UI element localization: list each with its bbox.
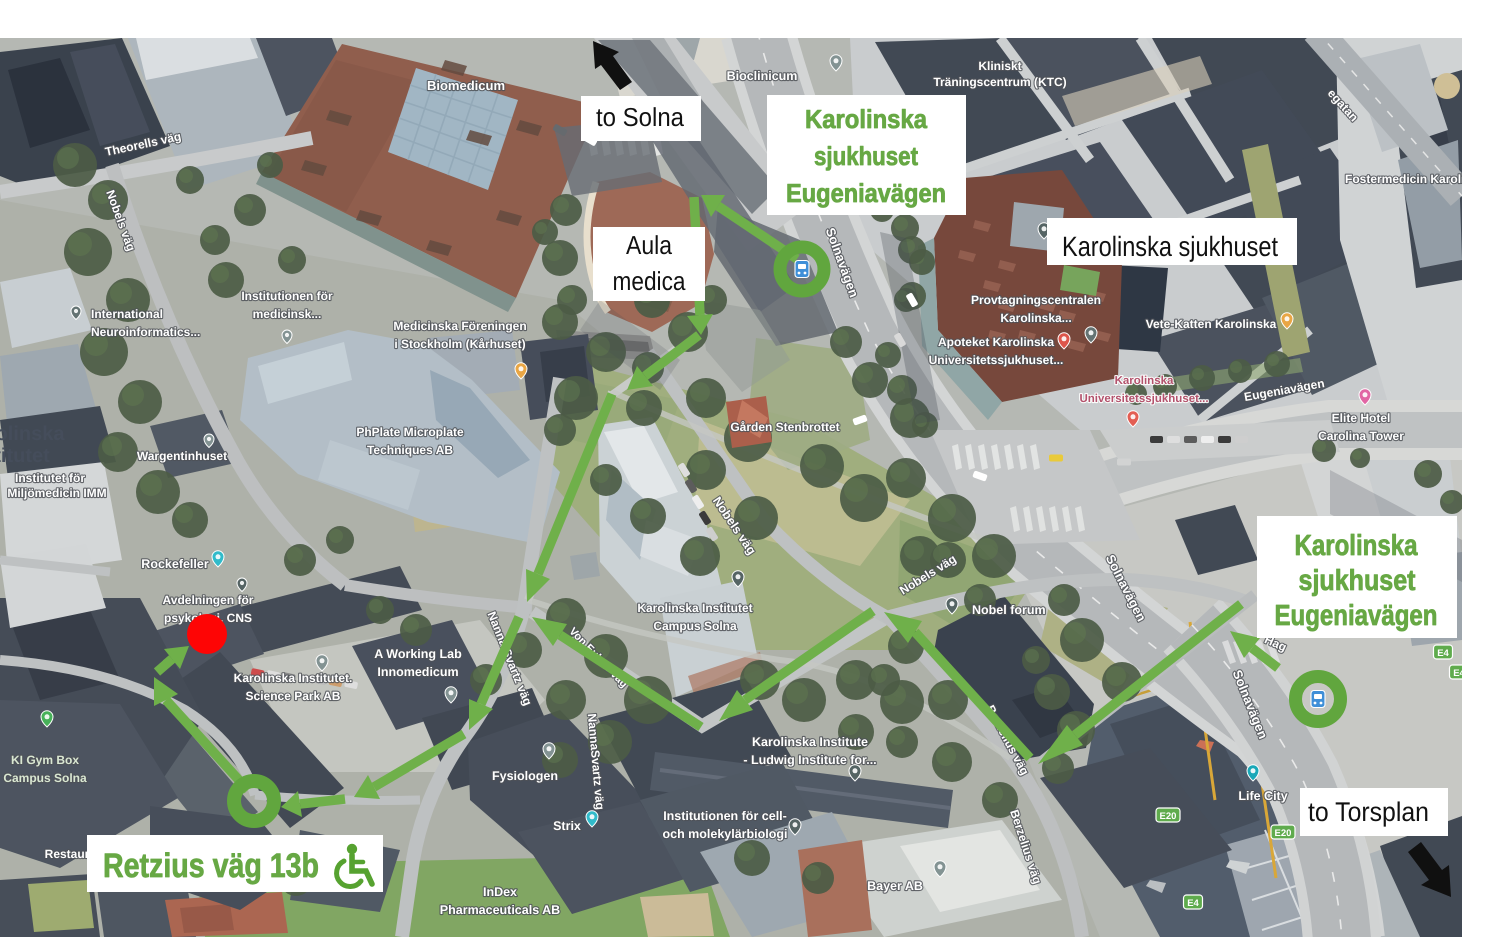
svg-text:to Torsplan: to Torsplan [1308, 797, 1429, 827]
svg-text:Karolinska: Karolinska [805, 104, 927, 134]
svg-text:medica: medica [613, 266, 686, 296]
svg-text:Eugeniavägen: Eugeniavägen [786, 178, 946, 208]
svg-text:to Solna: to Solna [596, 102, 684, 132]
svg-text:Karolinska sjukhuset: Karolinska sjukhuset [1062, 231, 1278, 262]
svg-text:sjukhuset: sjukhuset [1299, 565, 1416, 597]
svg-text:Retzius väg 13b: Retzius väg 13b [103, 847, 319, 885]
svg-text:Karolinska: Karolinska [1295, 530, 1419, 562]
svg-text:Aula: Aula [626, 230, 672, 260]
svg-text:sjukhuset: sjukhuset [814, 141, 918, 171]
svg-text:Eugeniavägen: Eugeniavägen [1275, 600, 1438, 632]
